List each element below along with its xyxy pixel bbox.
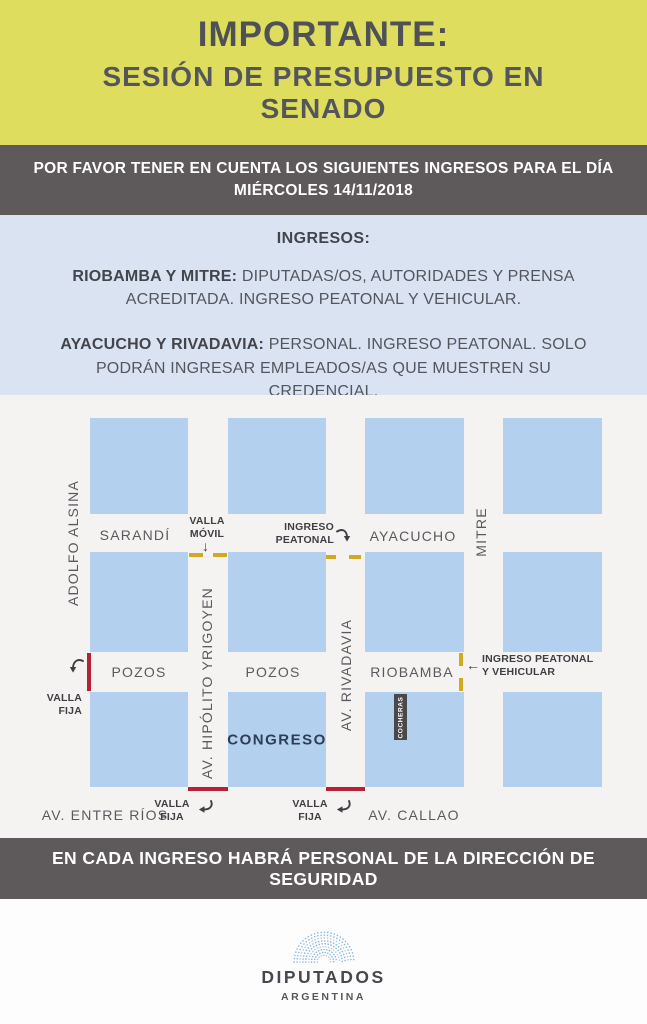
street-sarandi: SARANDÍ — [100, 527, 171, 543]
congreso-label: CONGRESO — [227, 732, 327, 749]
curved-down-arrow-icon — [335, 526, 352, 543]
diputados-hemicycle-logo — [269, 912, 379, 964]
ingreso-peatonal-vehicular-label: INGRESO PEATONAL Y VEHICULAR — [482, 653, 602, 678]
valla-fija-left-label: VALLA FIJA — [38, 692, 82, 717]
footer-org-name: DIPUTADOS — [261, 967, 385, 988]
city-block — [365, 552, 464, 652]
cocheras-tag: COCHERAS — [394, 694, 407, 740]
mobile-barrier-dash — [189, 553, 203, 557]
notice-banner: POR FAVOR TENER EN CUENTA LOS SIGUIENTES… — [0, 145, 647, 215]
city-block — [503, 692, 602, 787]
city-block — [503, 418, 602, 514]
mobile-barrier-dash — [459, 653, 463, 666]
return-left-arrow-icon — [336, 799, 353, 816]
valla-fija-bottom-1-label: VALLA FIJA — [150, 798, 194, 823]
curved-down-left-arrow-icon — [68, 657, 85, 674]
street-pozos-1: POZOS — [111, 664, 166, 680]
map-panel: ADOLFO ALSINA MITRE AV. HIPÓLITO YRIGOYE… — [0, 395, 647, 838]
mobile-barrier-dash — [326, 555, 336, 559]
entry-riobamba-mitre: RIOBAMBA Y MITRE: DIPUTADAS/OS, AUTORIDA… — [61, 265, 586, 311]
city-block — [365, 418, 464, 514]
city-block — [90, 692, 188, 787]
street-callao: AV. CALLAO — [368, 807, 459, 823]
city-block — [90, 552, 188, 652]
subtitle-line-1: SESIÓN DE PRESUPUESTO EN — [0, 61, 647, 93]
security-text: EN CADA INGRESO HABRÁ PERSONAL DE LA DIR… — [0, 848, 647, 890]
entry-ayacucho-rivadavia: AYACUCHO Y RIVADAVIA: PERSONAL. INGRESO … — [50, 333, 598, 403]
down-arrow-icon: ↓ — [202, 539, 209, 553]
security-banner: EN CADA INGRESO HABRÁ PERSONAL DE LA DIR… — [0, 838, 647, 899]
street-adolfo-alsina: ADOLFO ALSINA — [65, 480, 81, 606]
street-ayacucho: AYACUCHO — [370, 528, 457, 544]
valla-movil-label: VALLA MÓVIL — [183, 515, 231, 540]
left-arrow-icon: ← — [466, 658, 480, 672]
entry-lead: RIOBAMBA Y MITRE: — [72, 268, 237, 285]
return-left-arrow-icon — [198, 799, 215, 816]
ingreso-peatonal-label: INGRESO PEATONAL — [270, 521, 334, 546]
notice-line-2: MIÉRCOLES 14/11/2018 — [234, 180, 413, 202]
ingresos-heading: INGRESOS: — [0, 215, 647, 248]
street-riobamba: RIOBAMBA — [370, 664, 454, 680]
footer-country: ARGENTINA — [281, 991, 366, 1003]
city-block — [503, 552, 602, 652]
fixed-barrier-bar — [188, 787, 228, 791]
city-block-cocheras — [365, 692, 464, 787]
fixed-barrier-bar — [87, 653, 91, 691]
hero-banner: IMPORTANTE: SESIÓN DE PRESUPUESTO EN SEN… — [0, 0, 647, 145]
fixed-barrier-bar — [326, 787, 365, 791]
ingresos-panel: INGRESOS: RIOBAMBA Y MITRE: DIPUTADAS/OS… — [0, 215, 647, 395]
mobile-barrier-dash — [349, 555, 361, 559]
poster: IMPORTANTE: SESIÓN DE PRESUPUESTO EN SEN… — [0, 0, 647, 1024]
city-block — [228, 418, 326, 514]
cocheras-label: COCHERAS — [397, 696, 404, 738]
city-block — [228, 552, 326, 652]
entry-lead: AYACUCHO Y RIVADAVIA: — [60, 336, 264, 353]
street-rivadavia: AV. RIVADAVIA — [338, 619, 354, 731]
valla-fija-bottom-2-label: VALLA FIJA — [288, 798, 332, 823]
notice-line-1: POR FAVOR TENER EN CUENTA LOS SIGUIENTES… — [33, 158, 613, 180]
page-title: IMPORTANTE: — [0, 0, 647, 55]
page-subtitle: SESIÓN DE PRESUPUESTO EN SENADO — [0, 61, 647, 124]
mobile-barrier-dash — [213, 553, 227, 557]
subtitle-line-2: SENADO — [0, 93, 647, 125]
street-mitre: MITRE — [473, 507, 489, 557]
footer: DIPUTADOS ARGENTINA — [0, 899, 647, 1024]
mobile-barrier-dash — [459, 678, 463, 691]
street-pozos-2: POZOS — [245, 664, 300, 680]
street-hipolito-yrigoyen: AV. HIPÓLITO YRIGOYEN — [199, 587, 215, 779]
city-block — [90, 418, 188, 514]
